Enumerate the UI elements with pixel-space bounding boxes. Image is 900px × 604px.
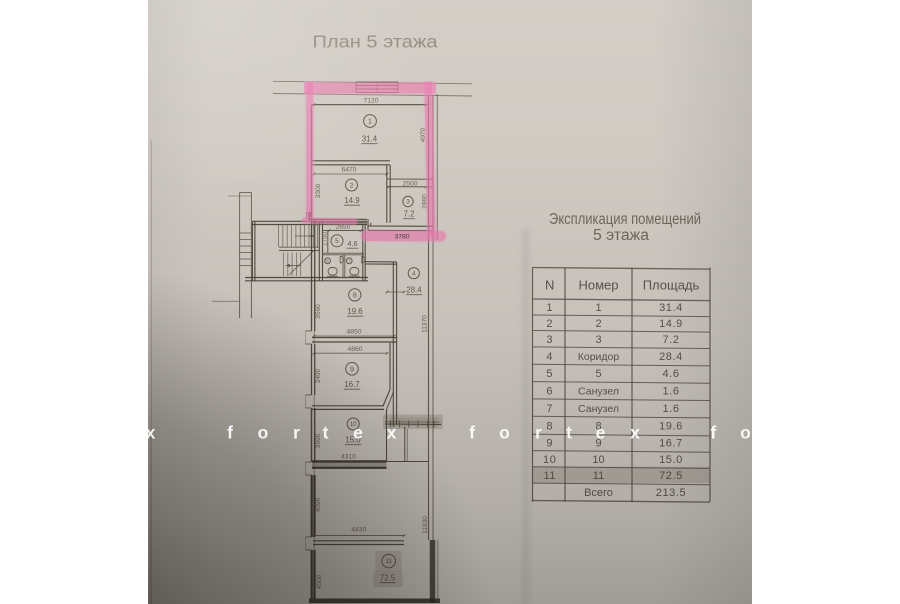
svg-text:14.9: 14.9	[344, 196, 359, 205]
svg-text:Площадь: Площадь	[643, 278, 700, 293]
svg-text:9: 9	[350, 366, 354, 373]
svg-text:2: 2	[595, 318, 601, 330]
svg-text:1.6: 1.6	[662, 403, 679, 415]
svg-text:3300: 3300	[315, 183, 322, 198]
svg-text:4090: 4090	[315, 497, 322, 512]
svg-text:19.6: 19.6	[659, 421, 683, 433]
svg-text:16.7: 16.7	[344, 380, 359, 389]
svg-text:3560: 3560	[315, 304, 322, 319]
svg-text:11: 11	[543, 470, 556, 482]
svg-text:6470: 6470	[341, 167, 356, 174]
svg-text:10: 10	[592, 454, 604, 466]
svg-text:4860: 4860	[347, 346, 362, 353]
svg-text:7120: 7120	[363, 98, 378, 105]
svg-text:План 5 этажа: План 5 этажа	[313, 32, 438, 52]
svg-text:14.9: 14.9	[659, 318, 683, 330]
svg-text:7.2: 7.2	[662, 334, 679, 346]
svg-text:11930: 11930	[422, 516, 429, 534]
svg-text:28.4: 28.4	[406, 286, 422, 295]
svg-text:Экспликация помещений: Экспликация помещений	[549, 211, 701, 228]
svg-text:11370: 11370	[422, 315, 429, 333]
svg-text:213.5: 213.5	[656, 487, 687, 499]
svg-text:6: 6	[326, 258, 329, 263]
svg-text:3: 3	[595, 334, 601, 346]
svg-text:4.6: 4.6	[662, 368, 679, 380]
svg-text:3490: 3490	[315, 368, 322, 383]
svg-text:3690: 3690	[315, 433, 322, 448]
svg-text:72.5: 72.5	[380, 574, 396, 583]
svg-text:9: 9	[595, 438, 601, 450]
svg-text:8: 8	[595, 421, 601, 433]
svg-text:15.0: 15.0	[659, 454, 683, 466]
svg-text:Всего: Всего	[584, 487, 613, 499]
svg-text:4430: 4430	[351, 526, 366, 533]
svg-text:4500: 4500	[316, 574, 323, 589]
svg-text:3: 3	[546, 334, 553, 346]
svg-text:1.6: 1.6	[662, 385, 679, 397]
svg-text:1: 1	[368, 118, 372, 125]
svg-text:16.7: 16.7	[659, 438, 683, 450]
svg-text:3780: 3780	[394, 233, 409, 240]
svg-text:6: 6	[546, 385, 553, 397]
svg-text:19.6: 19.6	[347, 307, 362, 316]
svg-text:4310: 4310	[341, 454, 356, 461]
svg-text:5: 5	[335, 238, 339, 245]
svg-text:8: 8	[546, 421, 553, 433]
svg-text:4: 4	[412, 270, 416, 277]
svg-text:2500: 2500	[402, 180, 417, 187]
svg-text:3: 3	[406, 199, 410, 206]
svg-text:4.6: 4.6	[347, 239, 357, 248]
svg-text:7: 7	[348, 258, 351, 263]
svg-text:10: 10	[543, 454, 556, 466]
svg-text:9: 9	[546, 438, 553, 450]
svg-text:4850: 4850	[346, 329, 361, 336]
svg-text:28.4: 28.4	[659, 351, 683, 363]
svg-text:5 этажа: 5 этажа	[593, 227, 649, 244]
svg-text:11: 11	[593, 470, 604, 482]
svg-text:Санузел: Санузел	[578, 403, 619, 415]
svg-text:7.2: 7.2	[404, 210, 415, 219]
svg-text:Номер: Номер	[578, 278, 618, 293]
svg-text:1: 1	[546, 302, 553, 314]
svg-text:2: 2	[350, 182, 354, 189]
svg-text:4: 4	[546, 351, 553, 363]
svg-text:10: 10	[350, 422, 357, 428]
svg-text:2: 2	[546, 318, 553, 330]
svg-text:7: 7	[546, 403, 553, 415]
svg-text:5: 5	[546, 368, 553, 380]
svg-text:1: 1	[595, 302, 601, 314]
svg-text:31.4: 31.4	[362, 135, 378, 144]
svg-text:31.4: 31.4	[659, 302, 683, 314]
svg-text:15.0: 15.0	[345, 436, 361, 445]
svg-text:Коридор: Коридор	[578, 351, 620, 363]
svg-text:8: 8	[353, 292, 357, 299]
svg-text:N: N	[545, 278, 554, 293]
svg-text:5: 5	[595, 368, 601, 380]
svg-text:Санузел: Санузел	[578, 385, 619, 397]
svg-text:11: 11	[385, 558, 392, 565]
svg-text:72.5: 72.5	[659, 470, 683, 482]
